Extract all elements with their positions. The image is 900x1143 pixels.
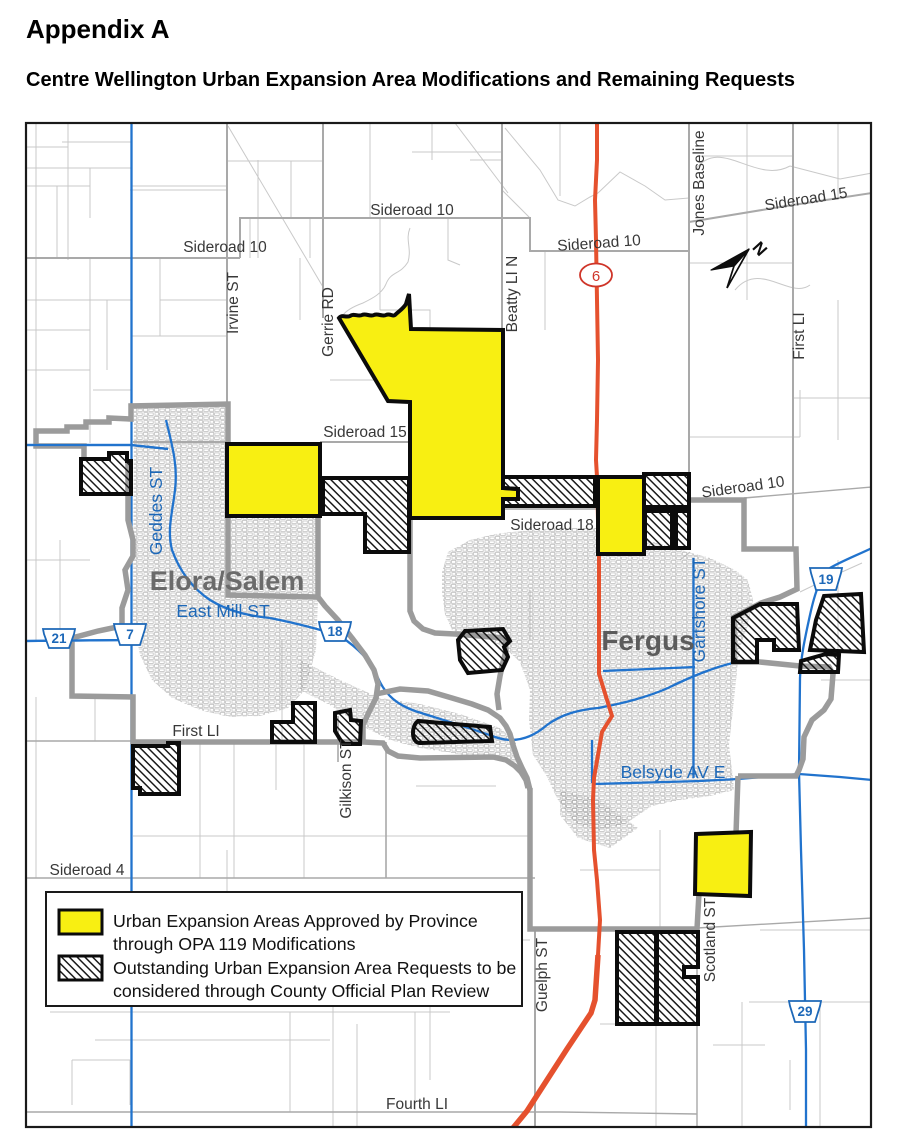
svg-text:Sideroad 10: Sideroad 10 [183, 239, 267, 256]
svg-text:6: 6 [592, 268, 600, 285]
svg-text:19: 19 [818, 572, 833, 587]
svg-text:Sideroad 4: Sideroad 4 [50, 862, 125, 879]
svg-text:7: 7 [126, 627, 134, 642]
svg-text:Elora/Salem: Elora/Salem [150, 566, 305, 596]
svg-text:Irvine ST: Irvine ST [225, 271, 242, 334]
svg-text:considered through County Offi: considered through County Official Plan … [113, 981, 489, 1001]
svg-text:First LI: First LI [172, 723, 219, 740]
svg-text:Urban Expansion Areas Approved: Urban Expansion Areas Approved by Provin… [113, 911, 478, 931]
svg-text:First LI: First LI [791, 312, 808, 359]
svg-text:Outstanding Urban Expansion Ar: Outstanding Urban Expansion Area Request… [113, 958, 516, 978]
svg-text:Sideroad 15: Sideroad 15 [323, 424, 407, 441]
svg-text:Fourth LI: Fourth LI [386, 1096, 448, 1113]
svg-text:Scotland ST: Scotland ST [702, 897, 719, 982]
svg-text:Geddes ST: Geddes ST [146, 466, 166, 555]
svg-text:29: 29 [797, 1004, 812, 1019]
svg-text:Belsyde AV E: Belsyde AV E [621, 762, 726, 782]
svg-text:21: 21 [51, 631, 67, 646]
svg-text:Fergus: Fergus [601, 625, 694, 656]
svg-text:Guelph ST: Guelph ST [534, 937, 551, 1012]
svg-text:through OPA 119 Modifications: through OPA 119 Modifications [113, 934, 356, 954]
svg-text:Gilkison ST: Gilkison ST [338, 739, 355, 819]
svg-text:Jones Baseline: Jones Baseline [691, 130, 708, 235]
svg-text:East Mill ST: East Mill ST [176, 601, 270, 621]
svg-text:Sideroad 18: Sideroad 18 [510, 517, 594, 534]
svg-text:18: 18 [327, 624, 343, 639]
svg-text:Beatty LI N: Beatty LI N [504, 256, 521, 333]
svg-text:Gerrie RD: Gerrie RD [320, 287, 337, 357]
svg-text:Sideroad 10: Sideroad 10 [370, 202, 454, 219]
